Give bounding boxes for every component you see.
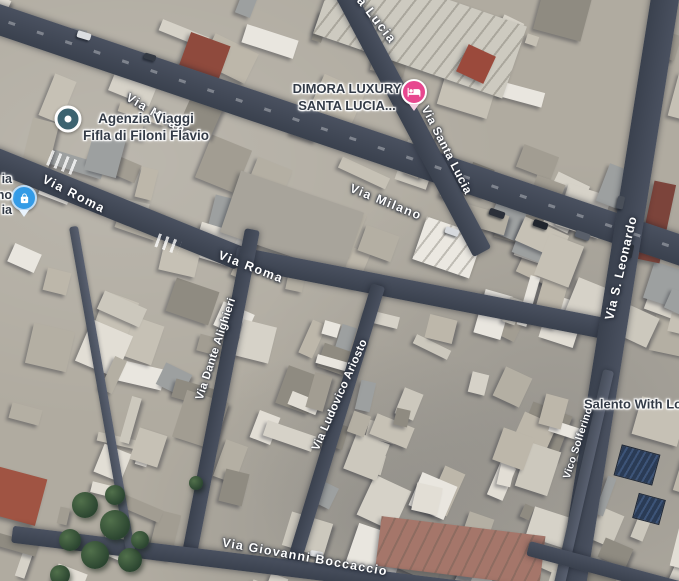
hotel-marker[interactable] bbox=[401, 79, 427, 111]
street-label-a-lucia: a Lucia bbox=[354, 0, 400, 46]
poi-label-dimora-luxury[interactable]: DIMORA LUXURY SANTA LUCIA... bbox=[293, 80, 402, 114]
satellite-map[interactable]: Via Milano Via Milano Via Roma Via Roma … bbox=[0, 0, 679, 581]
street-label-via-dante-alighieri: Via Dante Alighieri bbox=[194, 296, 238, 401]
street-label-via-roma-west: Via Roma bbox=[40, 172, 108, 216]
agenzia-poi-marker[interactable] bbox=[55, 106, 82, 133]
locksmith-marker[interactable] bbox=[11, 185, 37, 217]
marker-pointer bbox=[409, 104, 419, 111]
generic-dot-icon bbox=[55, 106, 82, 133]
poi-label-agenzia-viaggi[interactable]: Agenzia Viaggi Fifla di Filoni Flavio bbox=[83, 110, 209, 144]
hotel-bed-icon bbox=[401, 79, 427, 105]
poi-label-line: no bbox=[0, 188, 12, 204]
street-label-via-santa-lucia: Via Santa Lucia bbox=[419, 103, 476, 196]
marker-pointer bbox=[19, 210, 29, 217]
street-label-vico-solferino: Vico Solferino bbox=[561, 406, 595, 481]
poi-label-line: Salento With Lo bbox=[584, 396, 679, 413]
street-label-via-ludovico-ariosto: Via Ludovico Ariosto bbox=[310, 338, 370, 453]
padlock-icon bbox=[11, 185, 37, 211]
dot-center bbox=[65, 116, 72, 123]
street-label-via-giovanni-boccaccio: Via Giovanni Boccaccio bbox=[221, 536, 389, 579]
street-label-via-roma-center: Via Roma bbox=[216, 248, 285, 286]
poi-label-salento-with-love[interactable]: Salento With Lo bbox=[584, 396, 679, 413]
poi-label-line: DIMORA LUXURY bbox=[293, 80, 402, 97]
poi-label-line: ia bbox=[0, 203, 12, 219]
poi-label-line: SANTA LUCIA... bbox=[293, 97, 402, 114]
street-label-via-milano-center: Via Milano bbox=[348, 181, 424, 223]
poi-label-line: Agenzia Viaggi bbox=[83, 110, 209, 127]
street-label-via-s-leonardo: Via S. Leonardo bbox=[602, 215, 640, 322]
poi-label-line: Fifla di Filoni Flavio bbox=[83, 127, 209, 144]
poi-label-truncated-left[interactable]: ia no ia bbox=[0, 172, 12, 219]
poi-label-line: ia bbox=[0, 172, 12, 188]
